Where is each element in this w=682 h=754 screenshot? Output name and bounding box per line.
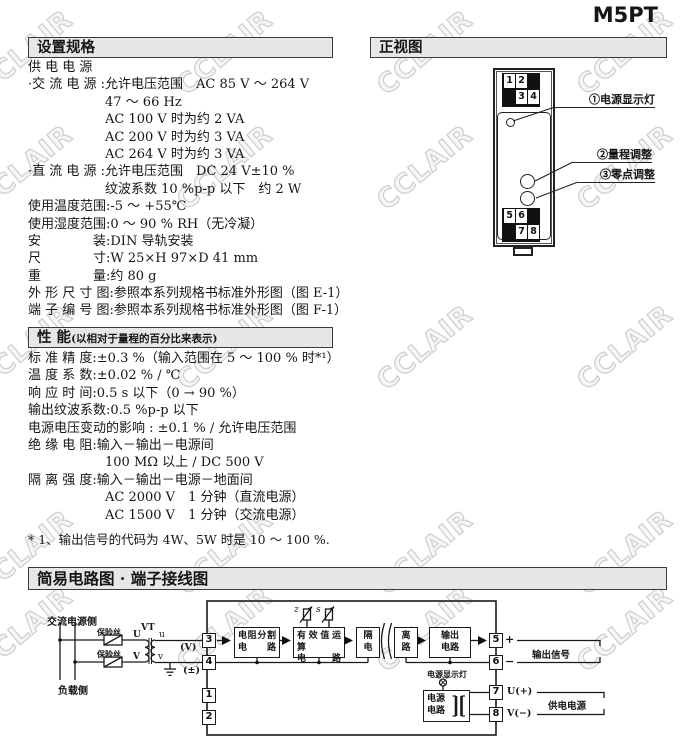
spec-line: 使用温度范围:-5 ～ +55℃ (28, 198, 368, 215)
label-u-sec: u (159, 630, 165, 640)
spec-line: 端 子 编 号 图:参照本系列规格书标准外形图（图 F-1） (28, 302, 368, 319)
spec-line: AC 100 V 时为约 2 VA (28, 111, 368, 128)
spec-line: 外 形 尺 寸 图:参照本系列规格书标准外形图（图 E-1） (28, 285, 368, 302)
block-resistor-divider-line1: 电阻分割 (235, 631, 279, 643)
terminal-2: 2 (516, 74, 527, 88)
performance-line: 标 准 精 度:±0.3 %（输入范围在 5 ～ 100 % 时*¹） (28, 350, 368, 367)
label-vt: VT (141, 623, 155, 633)
terminal-6: 6 (516, 209, 527, 223)
label-supply-power: 供电电源 (548, 698, 586, 712)
front-view-diagram: 1 2 3 4 5 6 7 8 ①电源显示灯 ②量程调整 ③零点调整 (480, 60, 680, 275)
spec-line: 供 电 电 源 (28, 59, 368, 76)
block-rms-line1: 有效值运算 (294, 631, 344, 654)
label-voltage: (V) (180, 642, 196, 653)
spec-line: 使用湿度范围:0 ～ 90 % RH（无冷凝） (28, 216, 368, 233)
circuit-wiring (28, 595, 682, 754)
label-minus: − (505, 655, 514, 668)
section-header-circuit: 简易电路图 · 端子接线图 (28, 567, 667, 590)
label-u-plus: U(+) (507, 686, 532, 697)
performance-line: 温 度 系 数:±0.02 % / ℃ (28, 367, 368, 384)
footnote: * 1、输出信号的代码为 4W、5W 时是 10 ～ 100 %. (28, 529, 330, 548)
terminal-7: 7 (516, 225, 527, 239)
spec-line: 尺 寸:W 25×H 97×D 41 mm (28, 250, 368, 267)
block-output-line1: 输出 (430, 631, 470, 643)
din-rail-clip (513, 247, 533, 256)
label-ac-power-side: 交流电源侧 (47, 613, 97, 628)
datasheet-page: CCLAIRCCLAIRCCLAIRCCLAIRCCLAIRCCLAIRCCLA… (0, 0, 682, 754)
block-isolation-right-line2: 路 (395, 643, 417, 655)
section-header-frontview: 正视图 (370, 37, 667, 58)
performance-line: 隔 离 强 度:输入－输出－电源－地面间 (28, 472, 368, 489)
power-led-indicator (506, 118, 515, 127)
block-output-circuit: 输出 电路 (429, 627, 471, 658)
terminal-8: 8 (528, 225, 539, 239)
page-title: M5PT (593, 3, 658, 27)
block-isolation-left-line1: 隔 (357, 631, 379, 643)
block-power-line1: 电源 (424, 694, 452, 706)
section-header-performance-note: (以相对于量程的百分比来表示) (71, 333, 217, 345)
span-adjust-pot (520, 174, 535, 189)
spec-line: 47 ～ 66 Hz (28, 94, 368, 111)
label-fuse-2: 保险丝 (97, 649, 121, 660)
label-load-side: 负载侧 (58, 682, 88, 697)
performance-text: 标 准 精 度:±0.3 %（输入范围在 5 ～ 100 % 时*¹）温 度 系… (28, 350, 368, 524)
terminal-4: 4 (528, 90, 539, 104)
block-output-line2: 电路 (430, 643, 470, 655)
circuit-terminal-8: 8 (489, 707, 503, 722)
label-power-lamp: 电源显示灯 (427, 669, 467, 680)
block-rms-computation: 有效值运算 电 路 (293, 627, 345, 658)
block-isolation-right-line1: 离 (395, 631, 417, 643)
circuit-terminal-1: 1 (202, 688, 216, 703)
spec-line: ·直 流 电 源 :允许电压范围 DC 24 V±10 % (28, 163, 368, 180)
terminal-1: 1 (504, 74, 515, 88)
circuit-terminal-7: 7 (489, 685, 503, 700)
label-V: V (133, 652, 140, 662)
label-U: U (133, 630, 141, 640)
block-power-circuit: 电源 电路 (423, 690, 470, 722)
performance-line: 响 应 时 间:0.5 s 以下（0 → 90 %） (28, 385, 368, 402)
watermark-text: CCLAIR (571, 283, 682, 398)
block-isolation-left-line2: 电 (357, 643, 379, 655)
label-v-minus: V(−) (507, 708, 531, 719)
circuit-terminal-6: 6 (489, 655, 503, 670)
circuit-terminal-5: 5 (489, 633, 503, 648)
section-header-frontview-label: 正视图 (379, 39, 423, 56)
circuit-diagram: 交流电源侧 负载侧 保险丝 保险丝 VT U u V v (V) (±) 3 4… (28, 595, 682, 754)
block-isolation-left: 隔 电 (356, 627, 380, 658)
callout-span-adjust: ②量程调整 (573, 148, 652, 163)
block-resistor-divider: 电阻分割 电 路 (234, 627, 280, 658)
terminal-block-bottom: 5 6 7 8 (502, 208, 540, 242)
section-header-specs-label: 设置规格 (37, 39, 95, 56)
spec-line: 重 量:约 80 g (28, 268, 368, 285)
circuit-symbol-overlay (28, 595, 682, 754)
block-resistor-divider-line2: 电 路 (235, 643, 279, 655)
label-z-pot: z (294, 605, 299, 615)
callout-power-led: ①电源显示灯 (555, 93, 655, 108)
block-power-line2: 电路 (424, 706, 452, 718)
performance-line: AC 1500 V 1 分钟（交流电源） (28, 507, 368, 524)
section-header-performance-label: 性 能 (37, 329, 71, 346)
label-v-sec: v (158, 652, 163, 662)
spec-line: ·交 流 电 源 :允许电压范围 AC 85 V ～ 264 V (28, 76, 368, 93)
spec-line: 安 装:DIN 导轨安装 (28, 233, 368, 250)
label-s-pot: s (316, 605, 321, 615)
zero-adjust-pot (520, 191, 535, 206)
label-plus: + (505, 633, 514, 646)
section-header-specs: 设置规格 (28, 37, 333, 58)
performance-line: AC 2000 V 1 分钟（直流电源） (28, 489, 368, 506)
circuit-terminal-4: 4 (202, 655, 216, 670)
terminal-block-top: 1 2 3 4 (502, 73, 540, 107)
terminal-5: 5 (504, 209, 515, 223)
specs-text: 供 电 电 源·交 流 电 源 :允许电压范围 AC 85 V ～ 264 V4… (28, 59, 368, 320)
block-rms-line2: 电 路 (294, 654, 344, 666)
circuit-terminal-3: 3 (202, 633, 216, 648)
spec-line: 纹波系数 10 %p-p 以下 约 2 W (28, 181, 368, 198)
spec-line: AC 200 V 时为约 3 VA (28, 129, 368, 146)
callout-zero-adjust: ③零点调整 (578, 168, 655, 183)
terminal-3: 3 (516, 90, 527, 104)
label-fuse-1: 保险丝 (97, 627, 121, 638)
performance-line: 电源电压变动的影响 : ±0.1 % / 允许电压范围 (28, 420, 368, 437)
watermark-text: CCLAIR (371, 283, 499, 398)
performance-line: 输出纹波系数:0.5 %p-p 以下 (28, 402, 368, 419)
section-header-circuit-label: 简易电路图 · 端子接线图 (37, 569, 208, 588)
block-isolation-right: 离 路 (394, 627, 418, 658)
label-output-signal: 输出信号 (532, 647, 570, 661)
label-polarity: (±) (183, 665, 200, 676)
spec-line: AC 264 V 时为约 3 VA (28, 146, 368, 163)
performance-line: 100 MΩ 以上 / DC 500 V (28, 454, 368, 471)
section-header-performance: 性 能(以相对于量程的百分比来表示) (28, 327, 333, 348)
performance-line: 绝 缘 电 阻:输入－输出－电源间 (28, 437, 368, 454)
circuit-terminal-2: 2 (202, 710, 216, 725)
